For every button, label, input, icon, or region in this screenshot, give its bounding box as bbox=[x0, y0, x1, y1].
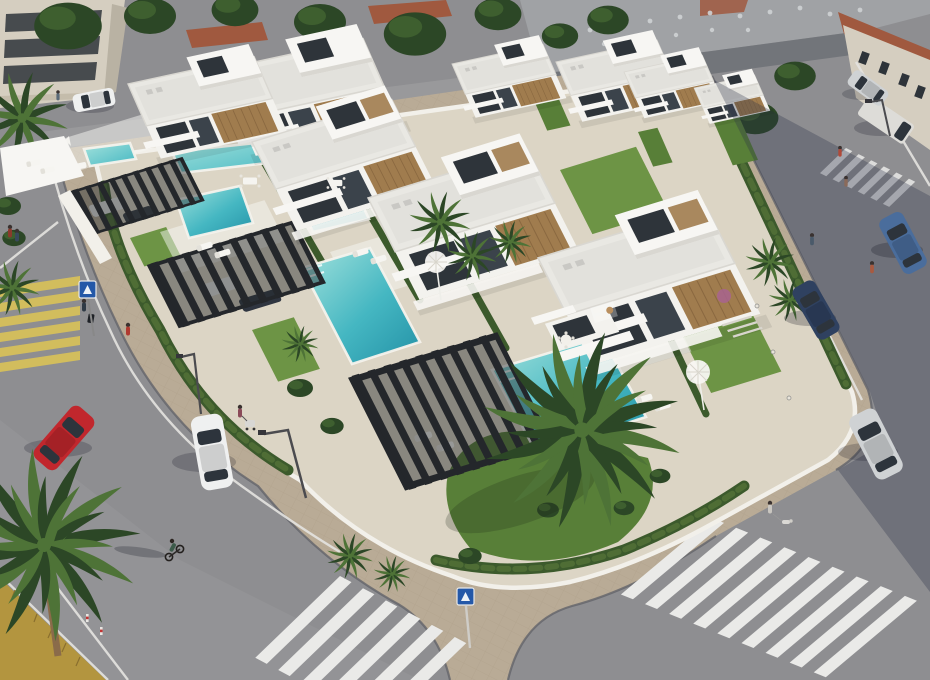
pedestrian-east-a bbox=[810, 233, 814, 245]
pedestrian-in-red bbox=[126, 323, 130, 336]
flowering-bush bbox=[717, 289, 731, 303]
pedestrian-northeast-a bbox=[838, 146, 842, 157]
pedestrian-east-b bbox=[870, 261, 874, 273]
render-viewport: Aerial drone view of a gated residential… bbox=[0, 0, 930, 680]
pedestrian-couple-a bbox=[8, 225, 12, 238]
pedestrian-couple-b bbox=[15, 229, 19, 242]
pedestrian-northeast-b bbox=[844, 176, 848, 187]
pedestrian-north-west bbox=[56, 90, 60, 100]
aerial-villa-render: Aerial drone view of a gated residential… bbox=[0, 0, 930, 680]
